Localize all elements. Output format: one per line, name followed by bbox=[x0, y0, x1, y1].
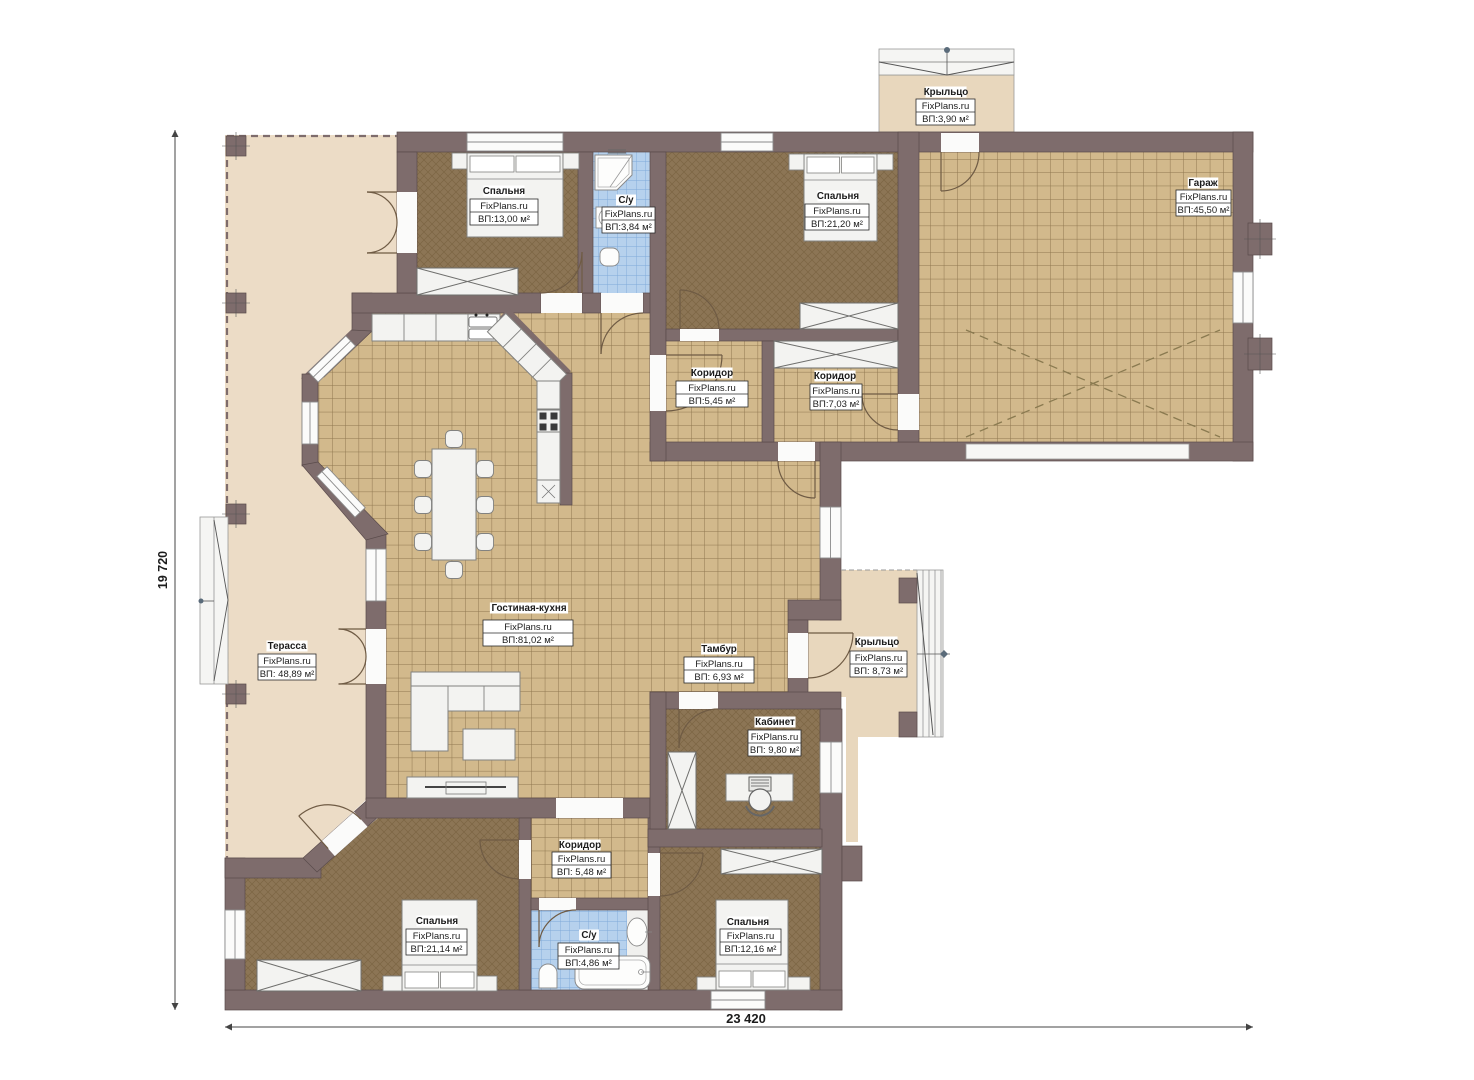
svg-text:FixPlans.ru: FixPlans.ru bbox=[504, 622, 552, 633]
svg-text:19 720: 19 720 bbox=[156, 551, 170, 589]
svg-text:Терасса: Терасса bbox=[268, 641, 307, 652]
svg-text:FixPlans.ru: FixPlans.ru bbox=[263, 656, 311, 667]
svg-text:ВП:4,86 м²: ВП:4,86 м² bbox=[565, 958, 612, 969]
svg-text:FixPlans.ru: FixPlans.ru bbox=[1180, 192, 1228, 203]
svg-text:FixPlans.ru: FixPlans.ru bbox=[813, 206, 861, 217]
svg-text:ВП:5,45 м²: ВП:5,45 м² bbox=[689, 396, 736, 407]
svg-text:ВП: 8,73 м²: ВП: 8,73 м² bbox=[854, 666, 903, 677]
svg-text:ВП:13,00 м²: ВП:13,00 м² bbox=[478, 214, 530, 225]
svg-text:ВП: 48,89 м²: ВП: 48,89 м² bbox=[260, 669, 315, 680]
svg-text:ВП:7,03 м²: ВП:7,03 м² bbox=[813, 399, 860, 410]
svg-text:Коридор: Коридор bbox=[691, 368, 733, 379]
svg-text:С/у: С/у bbox=[581, 930, 597, 941]
svg-text:Кабинет: Кабинет bbox=[755, 717, 795, 728]
svg-text:FixPlans.ru: FixPlans.ru bbox=[855, 653, 903, 664]
svg-text:FixPlans.ru: FixPlans.ru bbox=[565, 945, 613, 956]
svg-text:FixPlans.ru: FixPlans.ru bbox=[695, 659, 743, 670]
svg-text:ВП: 9,80 м²: ВП: 9,80 м² bbox=[750, 745, 799, 756]
svg-text:ВП:21,20 м²: ВП:21,20 м² bbox=[811, 219, 863, 230]
svg-text:Гостиная-кухня: Гостиная-кухня bbox=[491, 603, 566, 614]
svg-text:ВП:12,16 м²: ВП:12,16 м² bbox=[725, 944, 777, 955]
svg-text:ВП:3,90 м²: ВП:3,90 м² bbox=[922, 114, 969, 125]
svg-text:FixPlans.ru: FixPlans.ru bbox=[812, 386, 860, 397]
svg-text:ВП: 5,48 м²: ВП: 5,48 м² bbox=[557, 867, 606, 878]
svg-text:FixPlans.ru: FixPlans.ru bbox=[688, 383, 736, 394]
svg-text:Тамбур: Тамбур bbox=[701, 644, 737, 655]
svg-text:Спальня: Спальня bbox=[483, 186, 526, 197]
svg-text:FixPlans.ru: FixPlans.ru bbox=[727, 931, 775, 942]
svg-text:ВП:81,02 м²: ВП:81,02 м² bbox=[502, 635, 554, 646]
svg-text:FixPlans.ru: FixPlans.ru bbox=[751, 732, 799, 743]
svg-text:FixPlans.ru: FixPlans.ru bbox=[922, 101, 970, 112]
svg-text:Коридор: Коридор bbox=[814, 371, 856, 382]
svg-text:ВП:21,14 м²: ВП:21,14 м² bbox=[411, 944, 463, 955]
svg-text:Спальня: Спальня bbox=[817, 191, 860, 202]
svg-text:Спальня: Спальня bbox=[727, 917, 770, 928]
svg-text:FixPlans.ru: FixPlans.ru bbox=[558, 854, 606, 865]
svg-text:Крыльцо: Крыльцо bbox=[924, 87, 969, 98]
svg-text:Крыльцо: Крыльцо bbox=[855, 637, 900, 648]
svg-text:Коридор: Коридор bbox=[559, 840, 601, 851]
svg-text:Гараж: Гараж bbox=[1188, 178, 1218, 189]
svg-text:FixPlans.ru: FixPlans.ru bbox=[605, 209, 653, 220]
svg-text:ВП:3,84 м²: ВП:3,84 м² bbox=[605, 222, 652, 233]
svg-text:ВП: 6,93 м²: ВП: 6,93 м² bbox=[694, 672, 743, 683]
svg-text:ВП:45,50 м²: ВП:45,50 м² bbox=[1178, 205, 1230, 216]
svg-text:FixPlans.ru: FixPlans.ru bbox=[413, 931, 461, 942]
svg-text:FixPlans.ru: FixPlans.ru bbox=[480, 201, 528, 212]
svg-text:Спальня: Спальня bbox=[416, 916, 459, 927]
svg-text:С/у: С/у bbox=[618, 195, 634, 206]
svg-text:23 420: 23 420 bbox=[726, 1011, 766, 1026]
